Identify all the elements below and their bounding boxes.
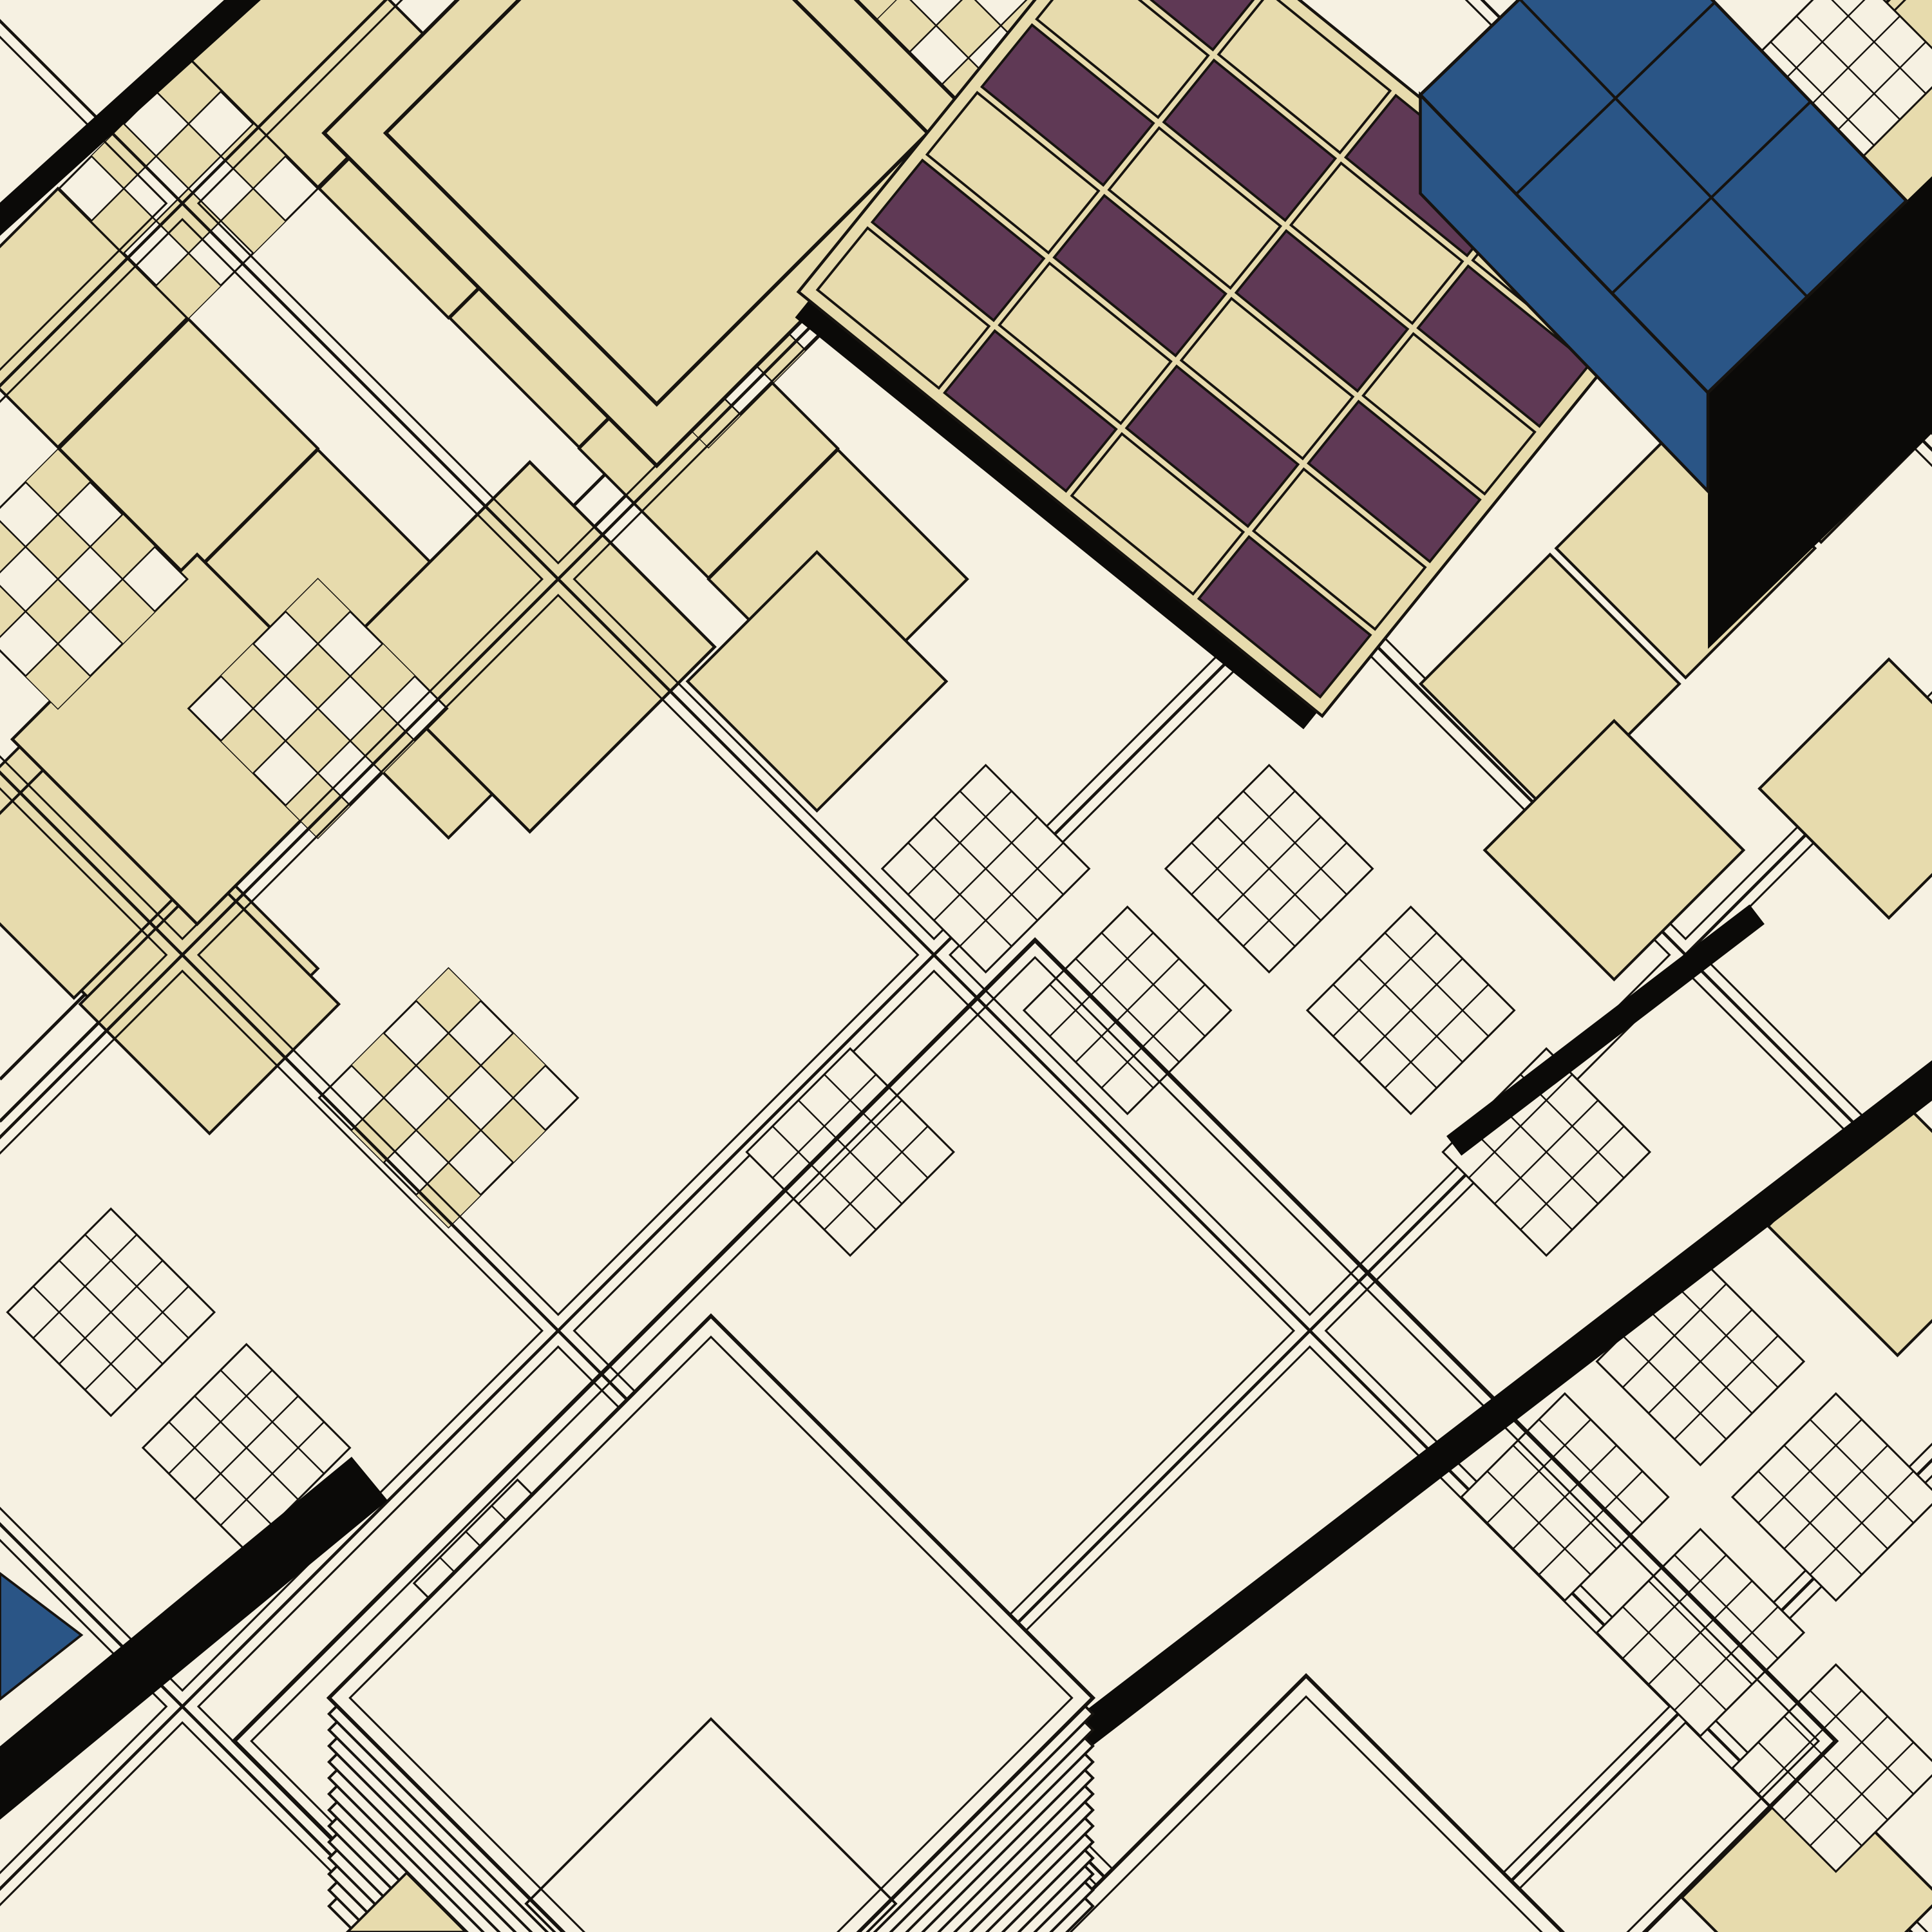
generative-art-canvas [0, 0, 1932, 1932]
artwork [0, 0, 1932, 1932]
